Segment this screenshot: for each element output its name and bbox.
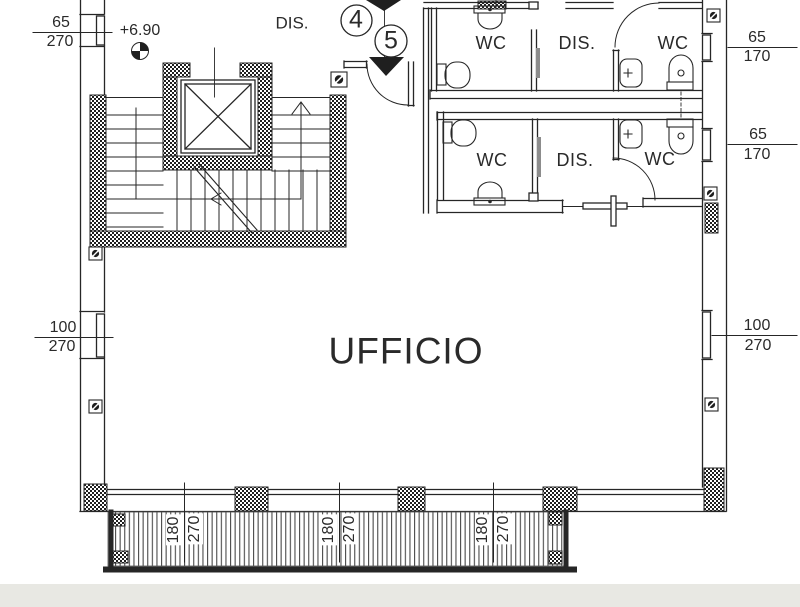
drain-marker-icon	[704, 187, 717, 200]
room-label-dis-mid: DIS.	[556, 151, 593, 169]
room-label-wc-mid-right: WC	[645, 150, 676, 168]
dim-width-balcony-door-1: 180	[166, 515, 182, 546]
sink-icon	[620, 59, 642, 87]
room-label-office: UFFICIO	[329, 333, 484, 370]
dim-width-right-low: 100	[744, 318, 771, 334]
dim-width-left-mid: 100	[50, 320, 77, 336]
window-right-low	[702, 311, 712, 360]
section-number-5: 5	[384, 29, 398, 54]
room-label-wc-mid-left: WC	[477, 151, 508, 169]
floor-plan-drawing	[0, 0, 800, 607]
section-number-4: 4	[349, 8, 363, 33]
drain-marker-icon	[705, 398, 718, 411]
dim-height-balcony-door-2: 270	[342, 514, 358, 545]
window-right-top	[702, 34, 712, 62]
dim-width-left-top: 65	[52, 15, 70, 31]
toilet-icon	[443, 120, 476, 146]
room-label-wc-top-right: WC	[658, 34, 689, 52]
dim-width-balcony-door-2: 180	[321, 515, 337, 546]
dim-width-right-top: 65	[748, 30, 766, 46]
sink-icon	[474, 182, 505, 205]
window-right-mid	[702, 129, 712, 162]
elevation-label: +6.90	[120, 23, 160, 39]
partition-door-leaf	[537, 137, 541, 177]
dim-height-left-mid: 270	[49, 339, 76, 355]
dim-height-left-top: 270	[47, 34, 74, 50]
door-arc-wc-top-right	[615, 3, 659, 47]
sliding-door-icon	[563, 196, 646, 226]
level-marker-icon	[132, 43, 149, 60]
toilet-icon	[437, 62, 470, 88]
drain-marker-icon	[89, 400, 102, 413]
room-label-dis-top: DIS.	[558, 34, 595, 52]
dim-height-balcony-door-1: 270	[187, 514, 203, 545]
partition-door-leaf	[536, 48, 540, 78]
sink-icon	[620, 120, 642, 148]
dim-height-right-top: 170	[744, 49, 771, 65]
room-label-wc-top-left: WC	[476, 34, 507, 52]
dim-height-right-low: 270	[745, 338, 772, 354]
room-label-hallway: DIS.	[275, 15, 308, 32]
door-arcs	[367, 3, 659, 200]
dim-height-balcony-door-3: 270	[496, 514, 512, 545]
dim-width-balcony-door-3: 180	[475, 515, 491, 546]
section-arrow-icon	[366, 0, 401, 11]
dim-width-right-mid: 65	[749, 127, 767, 143]
drain-marker-icon	[331, 72, 347, 87]
drain-marker-icon	[707, 9, 720, 22]
toilet-icon	[667, 55, 693, 90]
scan-edge-strip	[0, 584, 800, 607]
window-left-mid	[80, 312, 105, 359]
window-left-top	[80, 15, 105, 47]
dim-height-right-mid: 170	[744, 147, 771, 163]
section-arrow-icon	[369, 57, 404, 76]
drain-marker-icon	[89, 247, 102, 260]
floor-plan: DIS. +6.90 65 270 4 5 WC DIS. WC WC DIS.…	[0, 0, 800, 607]
